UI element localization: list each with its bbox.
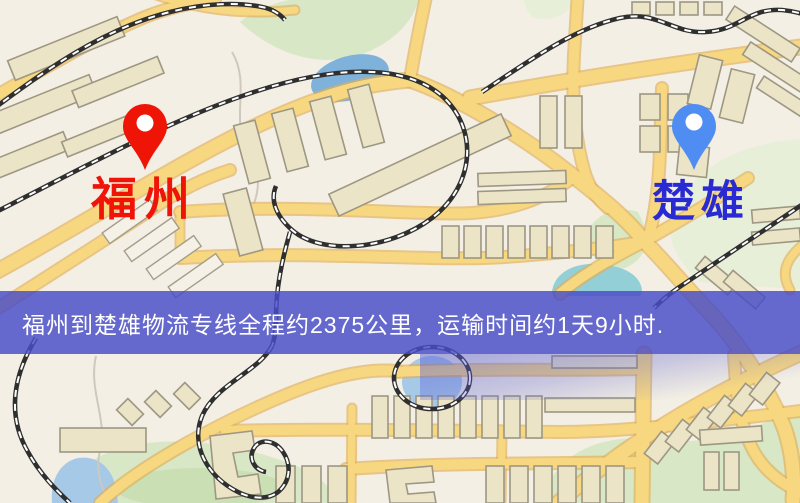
- map-background: [0, 0, 800, 503]
- route-info-banner: 福州到楚雄物流专线全程约2375公里，运输时间约1天9小时.: [0, 291, 800, 354]
- route-info-text: 福州到楚雄物流专线全程约2375公里，运输时间约1天9小时.: [0, 306, 664, 340]
- destination-city-label: 楚雄: [652, 181, 750, 224]
- origin-city-label: 福州: [91, 177, 197, 223]
- map-screenshot: 福州 楚雄 福州到楚雄物流专线全程约2375公里，运输时间约1天9小时.: [0, 0, 800, 503]
